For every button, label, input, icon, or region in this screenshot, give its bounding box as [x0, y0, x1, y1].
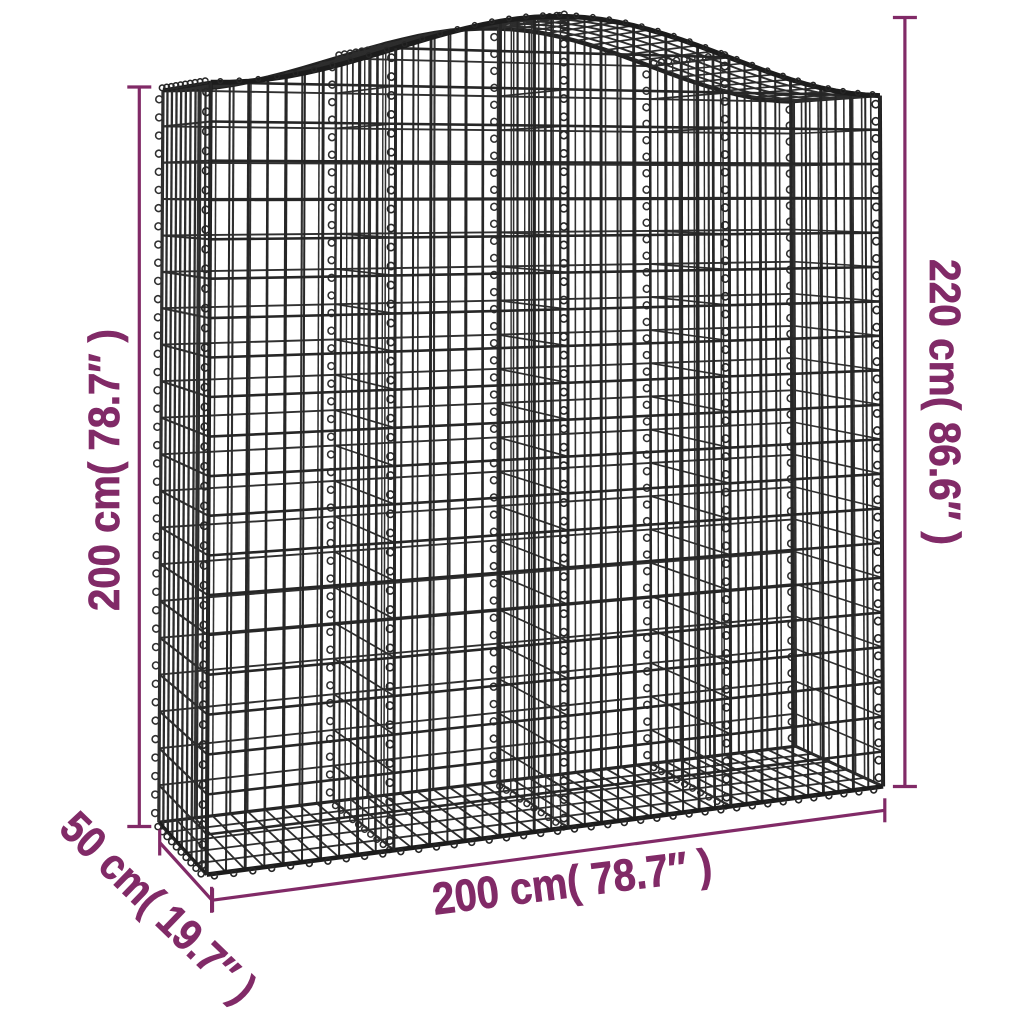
svg-text:220 cm( 86.6″ ): 220 cm( 86.6″ ) — [920, 259, 969, 545]
svg-text:200 cm( 78.7″ ): 200 cm( 78.7″ ) — [80, 329, 129, 611]
